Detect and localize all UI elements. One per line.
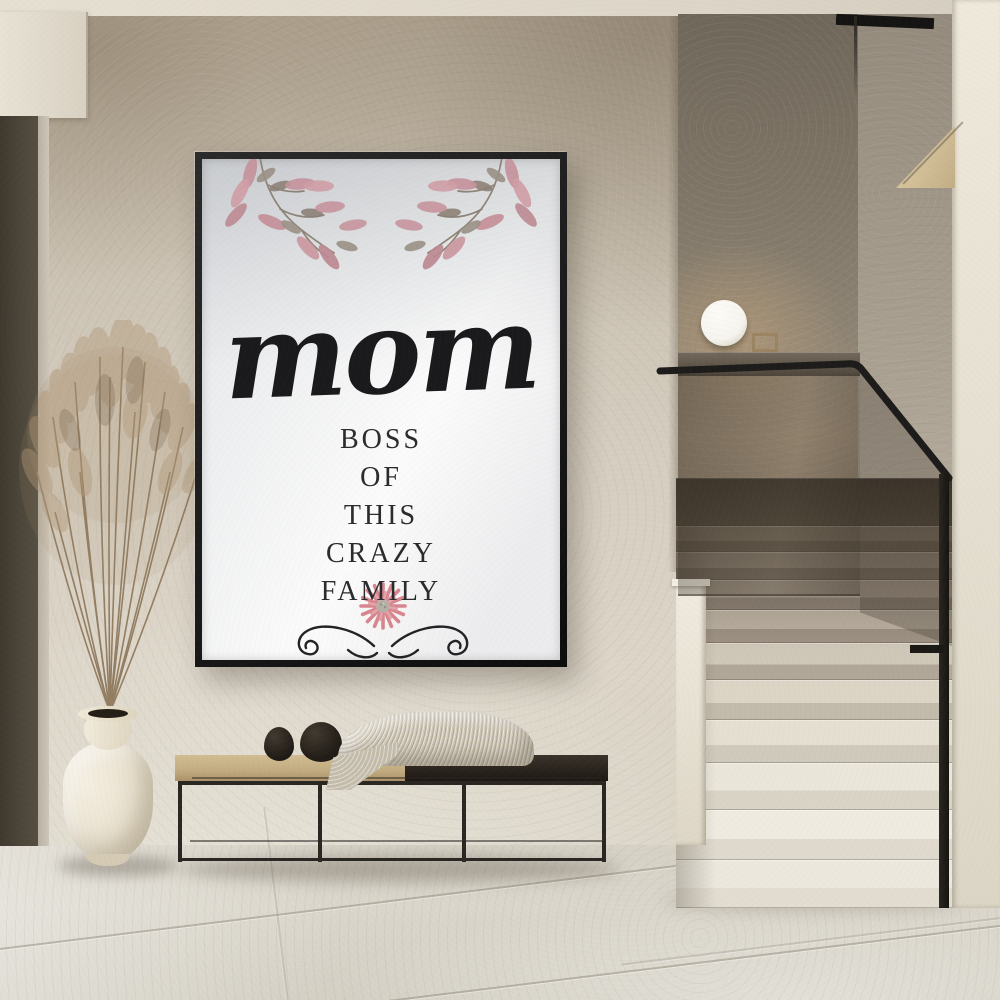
stair-step: [676, 720, 952, 763]
bench-leg: [178, 781, 182, 862]
ceiling-soffit: [0, 12, 88, 118]
decor-stone-large: [300, 722, 342, 762]
vase-opening: [88, 709, 128, 718]
poster-paper: mom BOSS OF THIS CRAZY FAMILY: [202, 159, 560, 660]
stair-step: [676, 763, 952, 810]
stairwell-corner-shadow: [854, 16, 857, 98]
stair-step: [676, 860, 952, 908]
subtitle-line: THIS: [202, 497, 560, 535]
vase-body: [63, 742, 153, 860]
poster-frame: mom BOSS OF THIS CRAZY FAMILY: [195, 152, 567, 667]
bench-back-top-rail: [192, 777, 602, 779]
railing-bracket: [910, 645, 944, 653]
sphere-lamp: [701, 300, 747, 346]
bench-back-bottom-rail: [190, 840, 602, 842]
stair-pony-wall: [676, 584, 706, 845]
poster-subtitle: BOSS OF THIS CRAZY FAMILY: [202, 421, 560, 611]
poster-title: mom: [202, 291, 560, 415]
subtitle-line: BOSS: [202, 421, 560, 459]
railing-post: [939, 474, 949, 908]
leaf-branch-right: [394, 159, 540, 272]
bench-leg: [318, 781, 322, 862]
bench-leg: [602, 781, 606, 862]
swirl-ornament-right: [389, 627, 467, 658]
interior-scene: mom BOSS OF THIS CRAZY FAMILY: [0, 0, 1000, 1000]
subtitle-line: OF: [202, 459, 560, 497]
leaf-branch-left: [222, 159, 368, 272]
subtitle-line: CRAZY: [202, 535, 560, 573]
bench-top-rail: [178, 781, 606, 785]
bench-leg: [462, 781, 466, 862]
handrail-bar: [660, 364, 949, 478]
stair-step: [676, 680, 952, 720]
bench-bottom-rail: [178, 858, 606, 861]
handrail: [650, 350, 960, 490]
decor-stone-small: [264, 727, 294, 761]
swirl-ornament-left: [299, 627, 377, 658]
stair-step: [676, 810, 952, 860]
subtitle-line: FAMILY: [202, 573, 560, 611]
